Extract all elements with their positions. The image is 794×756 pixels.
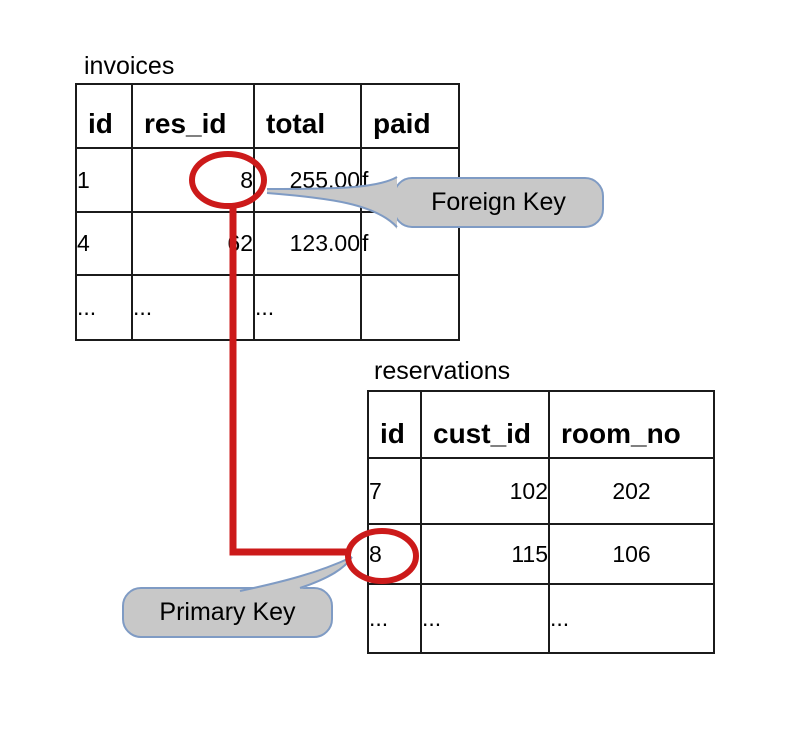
invoices-header-paid: paid	[361, 84, 459, 148]
invoices-cell-id: 1	[76, 148, 132, 212]
reservations-table: id cust_id room_no 7 102 202 8 115 106 .…	[367, 390, 715, 654]
foreign-key-callout-label: Foreign Key	[431, 188, 566, 217]
reservations-header-room_no: room_no	[549, 391, 714, 458]
reservations-cell-room_no: 202	[549, 458, 714, 524]
reservations-table-title: reservations	[374, 357, 510, 385]
reservations-cell-id: ...	[368, 584, 421, 653]
invoices-header-id: id	[76, 84, 132, 148]
invoices-header-row: id res_id total paid	[76, 84, 459, 148]
reservations-cell-cust_id: 102	[421, 458, 549, 524]
reservations-cell-id: 8	[368, 524, 421, 584]
reservations-row-1: 7 102 202	[368, 458, 714, 524]
reservations-cell-id: 7	[368, 458, 421, 524]
invoices-cell-res_id: 62	[132, 212, 254, 275]
invoices-cell-paid	[361, 275, 459, 340]
invoices-cell-res_id: ...	[132, 275, 254, 340]
reservations-cell-room_no: ...	[549, 584, 714, 653]
primary-key-callout-label: Primary Key	[159, 598, 295, 627]
invoices-table-title: invoices	[84, 52, 174, 80]
invoices-header-res_id: res_id	[132, 84, 254, 148]
reservations-cell-cust_id: ...	[421, 584, 549, 653]
er-diagram-canvas: invoices id res_id total paid 1 8 255.00…	[0, 0, 794, 756]
invoices-header-total: total	[254, 84, 361, 148]
invoices-cell-id: ...	[76, 275, 132, 340]
invoices-cell-total: 255.00	[254, 148, 361, 212]
reservations-cell-cust_id: 115	[421, 524, 549, 584]
reservations-header-row: id cust_id room_no	[368, 391, 714, 458]
foreign-key-callout: Foreign Key	[393, 177, 604, 228]
reservations-row-2: 8 115 106	[368, 524, 714, 584]
primary-key-callout: Primary Key	[122, 587, 333, 638]
invoices-cell-id: 4	[76, 212, 132, 275]
invoices-cell-total: 123.00	[254, 212, 361, 275]
invoices-cell-res_id: 8	[132, 148, 254, 212]
invoices-cell-total: ...	[254, 275, 361, 340]
reservations-row-ellipsis: ... ... ...	[368, 584, 714, 653]
reservations-header-cust_id: cust_id	[421, 391, 549, 458]
invoices-row-ellipsis: ... ... ...	[76, 275, 459, 340]
reservations-header-id: id	[368, 391, 421, 458]
reservations-cell-room_no: 106	[549, 524, 714, 584]
